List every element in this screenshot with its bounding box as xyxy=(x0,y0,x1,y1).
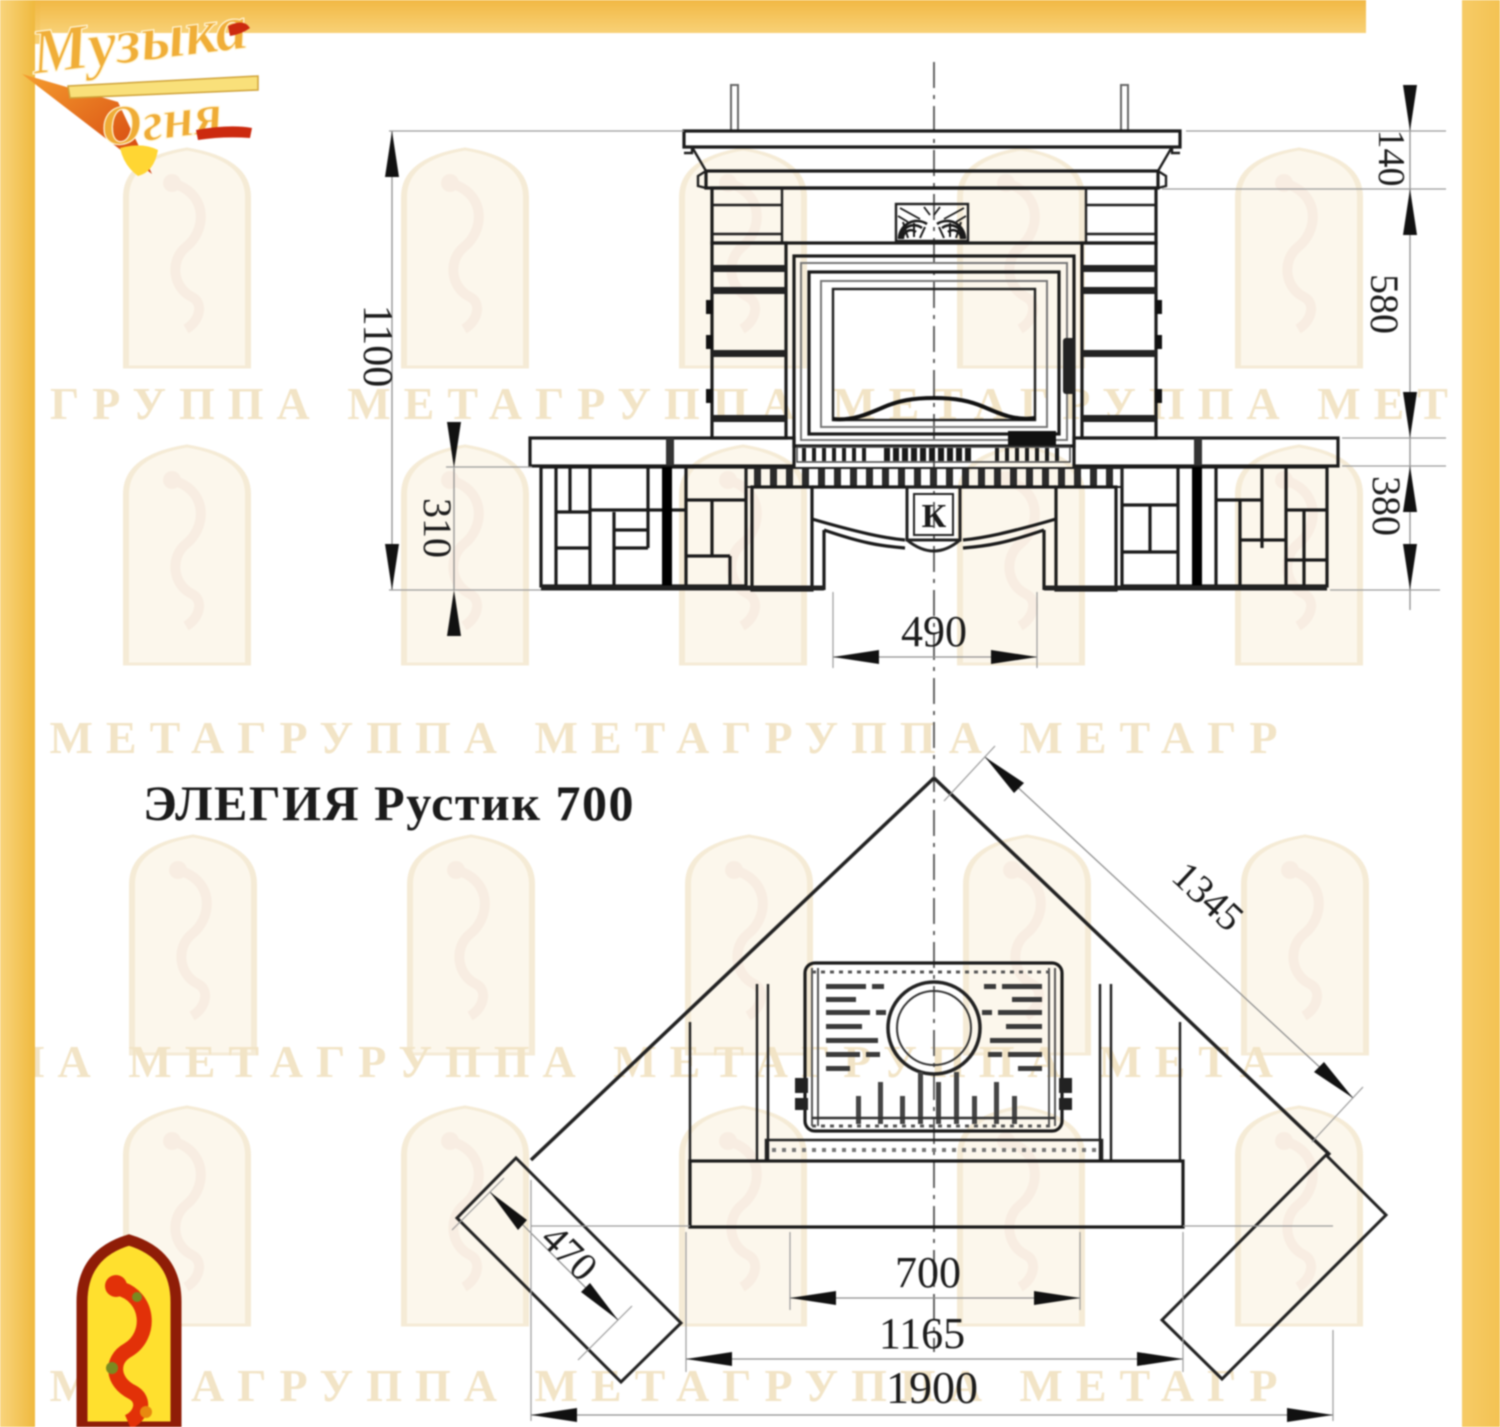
svg-text:490: 490 xyxy=(901,607,967,656)
svg-text:1900: 1900 xyxy=(886,1362,978,1413)
svg-text:140: 140 xyxy=(1370,130,1412,187)
svg-text:700: 700 xyxy=(895,1248,961,1297)
svg-text:310: 310 xyxy=(415,498,460,558)
svg-text:ППА МЕТАГРУППА МЕТАГРУППА МЕТА: ППА МЕТАГРУППА МЕТАГРУППА МЕТА xyxy=(0,1036,1286,1087)
svg-text:580: 580 xyxy=(1362,274,1407,334)
svg-text:1165: 1165 xyxy=(879,1309,965,1358)
svg-text:Огня: Огня xyxy=(98,83,226,159)
svg-text:ПА МЕТАГРУППА МЕТАГРУППА МЕТАГ: ПА МЕТАГРУППА МЕТАГРУППА МЕТАГР xyxy=(0,712,1291,763)
svg-text:Музыка: Музыка xyxy=(26,0,251,88)
svg-text:ЭЛЕГИЯ Рустик 700: ЭЛЕГИЯ Рустик 700 xyxy=(143,775,635,831)
svg-text:1345: 1345 xyxy=(1164,852,1253,939)
svg-text:ПА МЕТАГРУППА МЕТАГРУППА МЕТАГ: ПА МЕТАГРУППА МЕТАГРУППА МЕТАГР xyxy=(0,1360,1291,1411)
svg-text:380: 380 xyxy=(1364,476,1409,536)
svg-text:К: К xyxy=(922,498,947,535)
svg-text:1100: 1100 xyxy=(354,305,400,387)
